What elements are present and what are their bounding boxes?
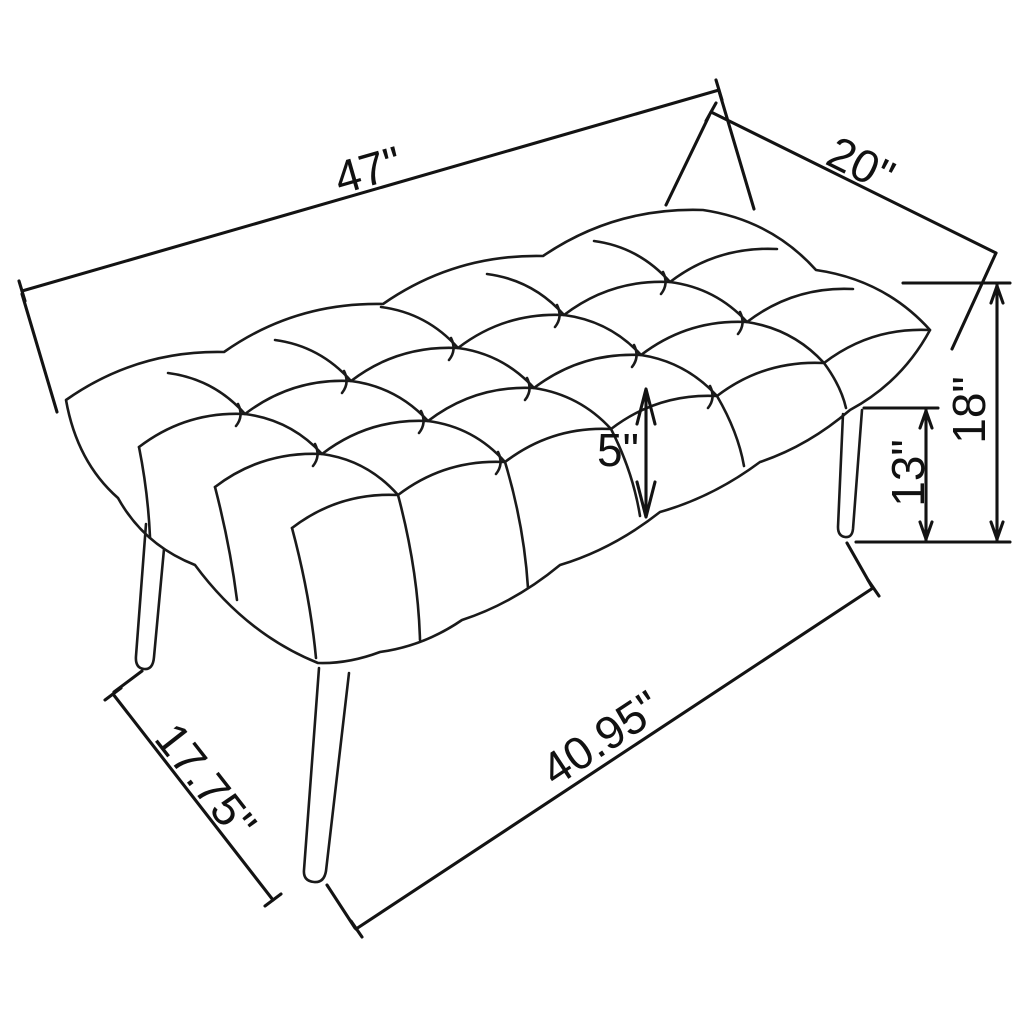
tuft-seam: [139, 447, 150, 537]
dim-label-clearance: 13": [881, 439, 935, 507]
bench-leg-front-left: [304, 668, 349, 882]
extension-line: [952, 253, 996, 349]
dimension-cushion-5: [637, 389, 655, 517]
extension-line: [327, 885, 355, 928]
tuft-seam: [215, 487, 237, 600]
dimension-length-47: [19, 80, 754, 412]
tuft-seam: [292, 528, 316, 658]
dim-label-cushion-thickness: 5": [597, 423, 639, 477]
extension-line: [666, 116, 709, 205]
extension-line: [22, 294, 57, 412]
bench-leg-front-right: [838, 410, 862, 537]
extension-line: [719, 91, 754, 209]
tuft-seam: [594, 241, 846, 408]
cushion-outline: [66, 210, 930, 663]
dim-label-height: 18": [942, 376, 996, 444]
extension-line: [847, 543, 872, 587]
dimension-depth-20: [666, 103, 996, 349]
dimension-annotations: [19, 80, 1010, 937]
tuft-seam: [168, 373, 420, 640]
dimension-end-tick: [265, 894, 281, 906]
dimension-diagram: 47" 20" 18" 13" 5" 40.95" 17.75": [0, 0, 1024, 1024]
extension-line: [114, 671, 142, 692]
tuft-seam-columns: [168, 241, 846, 640]
